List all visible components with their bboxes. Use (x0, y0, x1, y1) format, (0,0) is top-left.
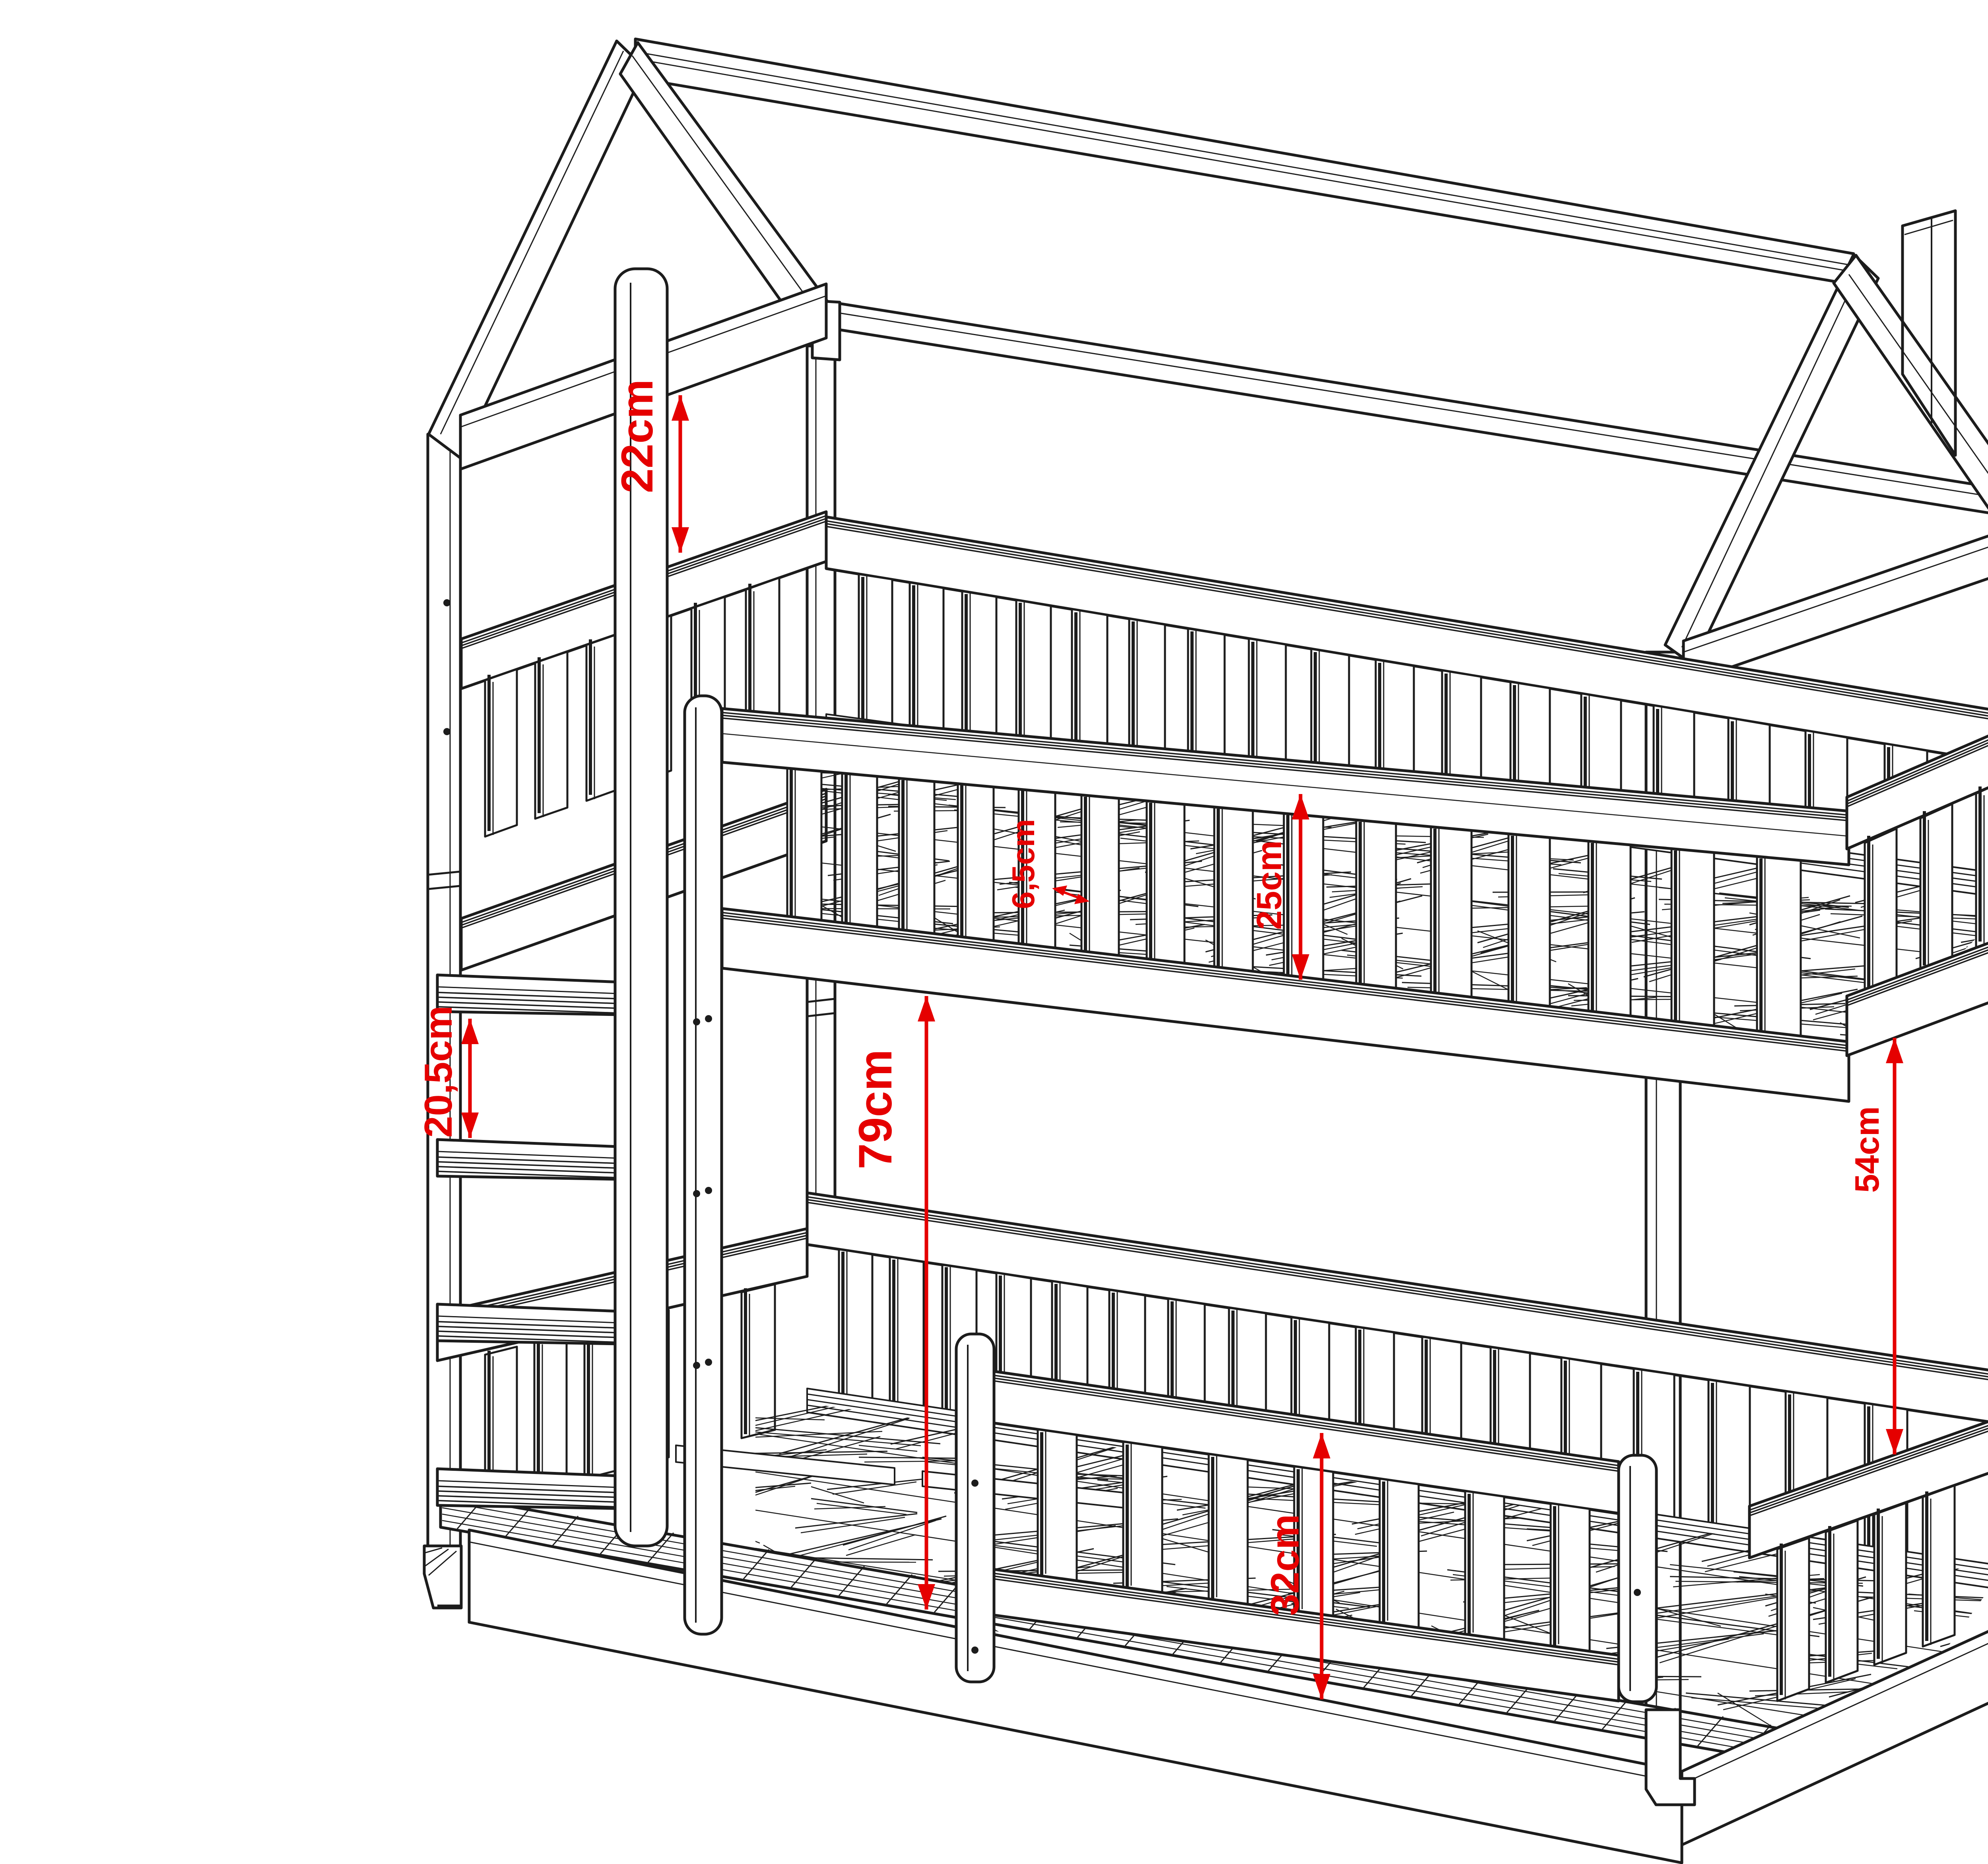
svg-text:22cm: 22cm (612, 379, 662, 493)
svg-text:6,5cm: 6,5cm (1006, 819, 1041, 909)
svg-text:25cm: 25cm (1249, 840, 1289, 930)
svg-text:32cm: 32cm (1263, 1514, 1307, 1616)
svg-text:20,5cm: 20,5cm (416, 1006, 460, 1138)
svg-text:54cm: 54cm (1848, 1106, 1886, 1192)
svg-text:79cm: 79cm (849, 1049, 902, 1169)
